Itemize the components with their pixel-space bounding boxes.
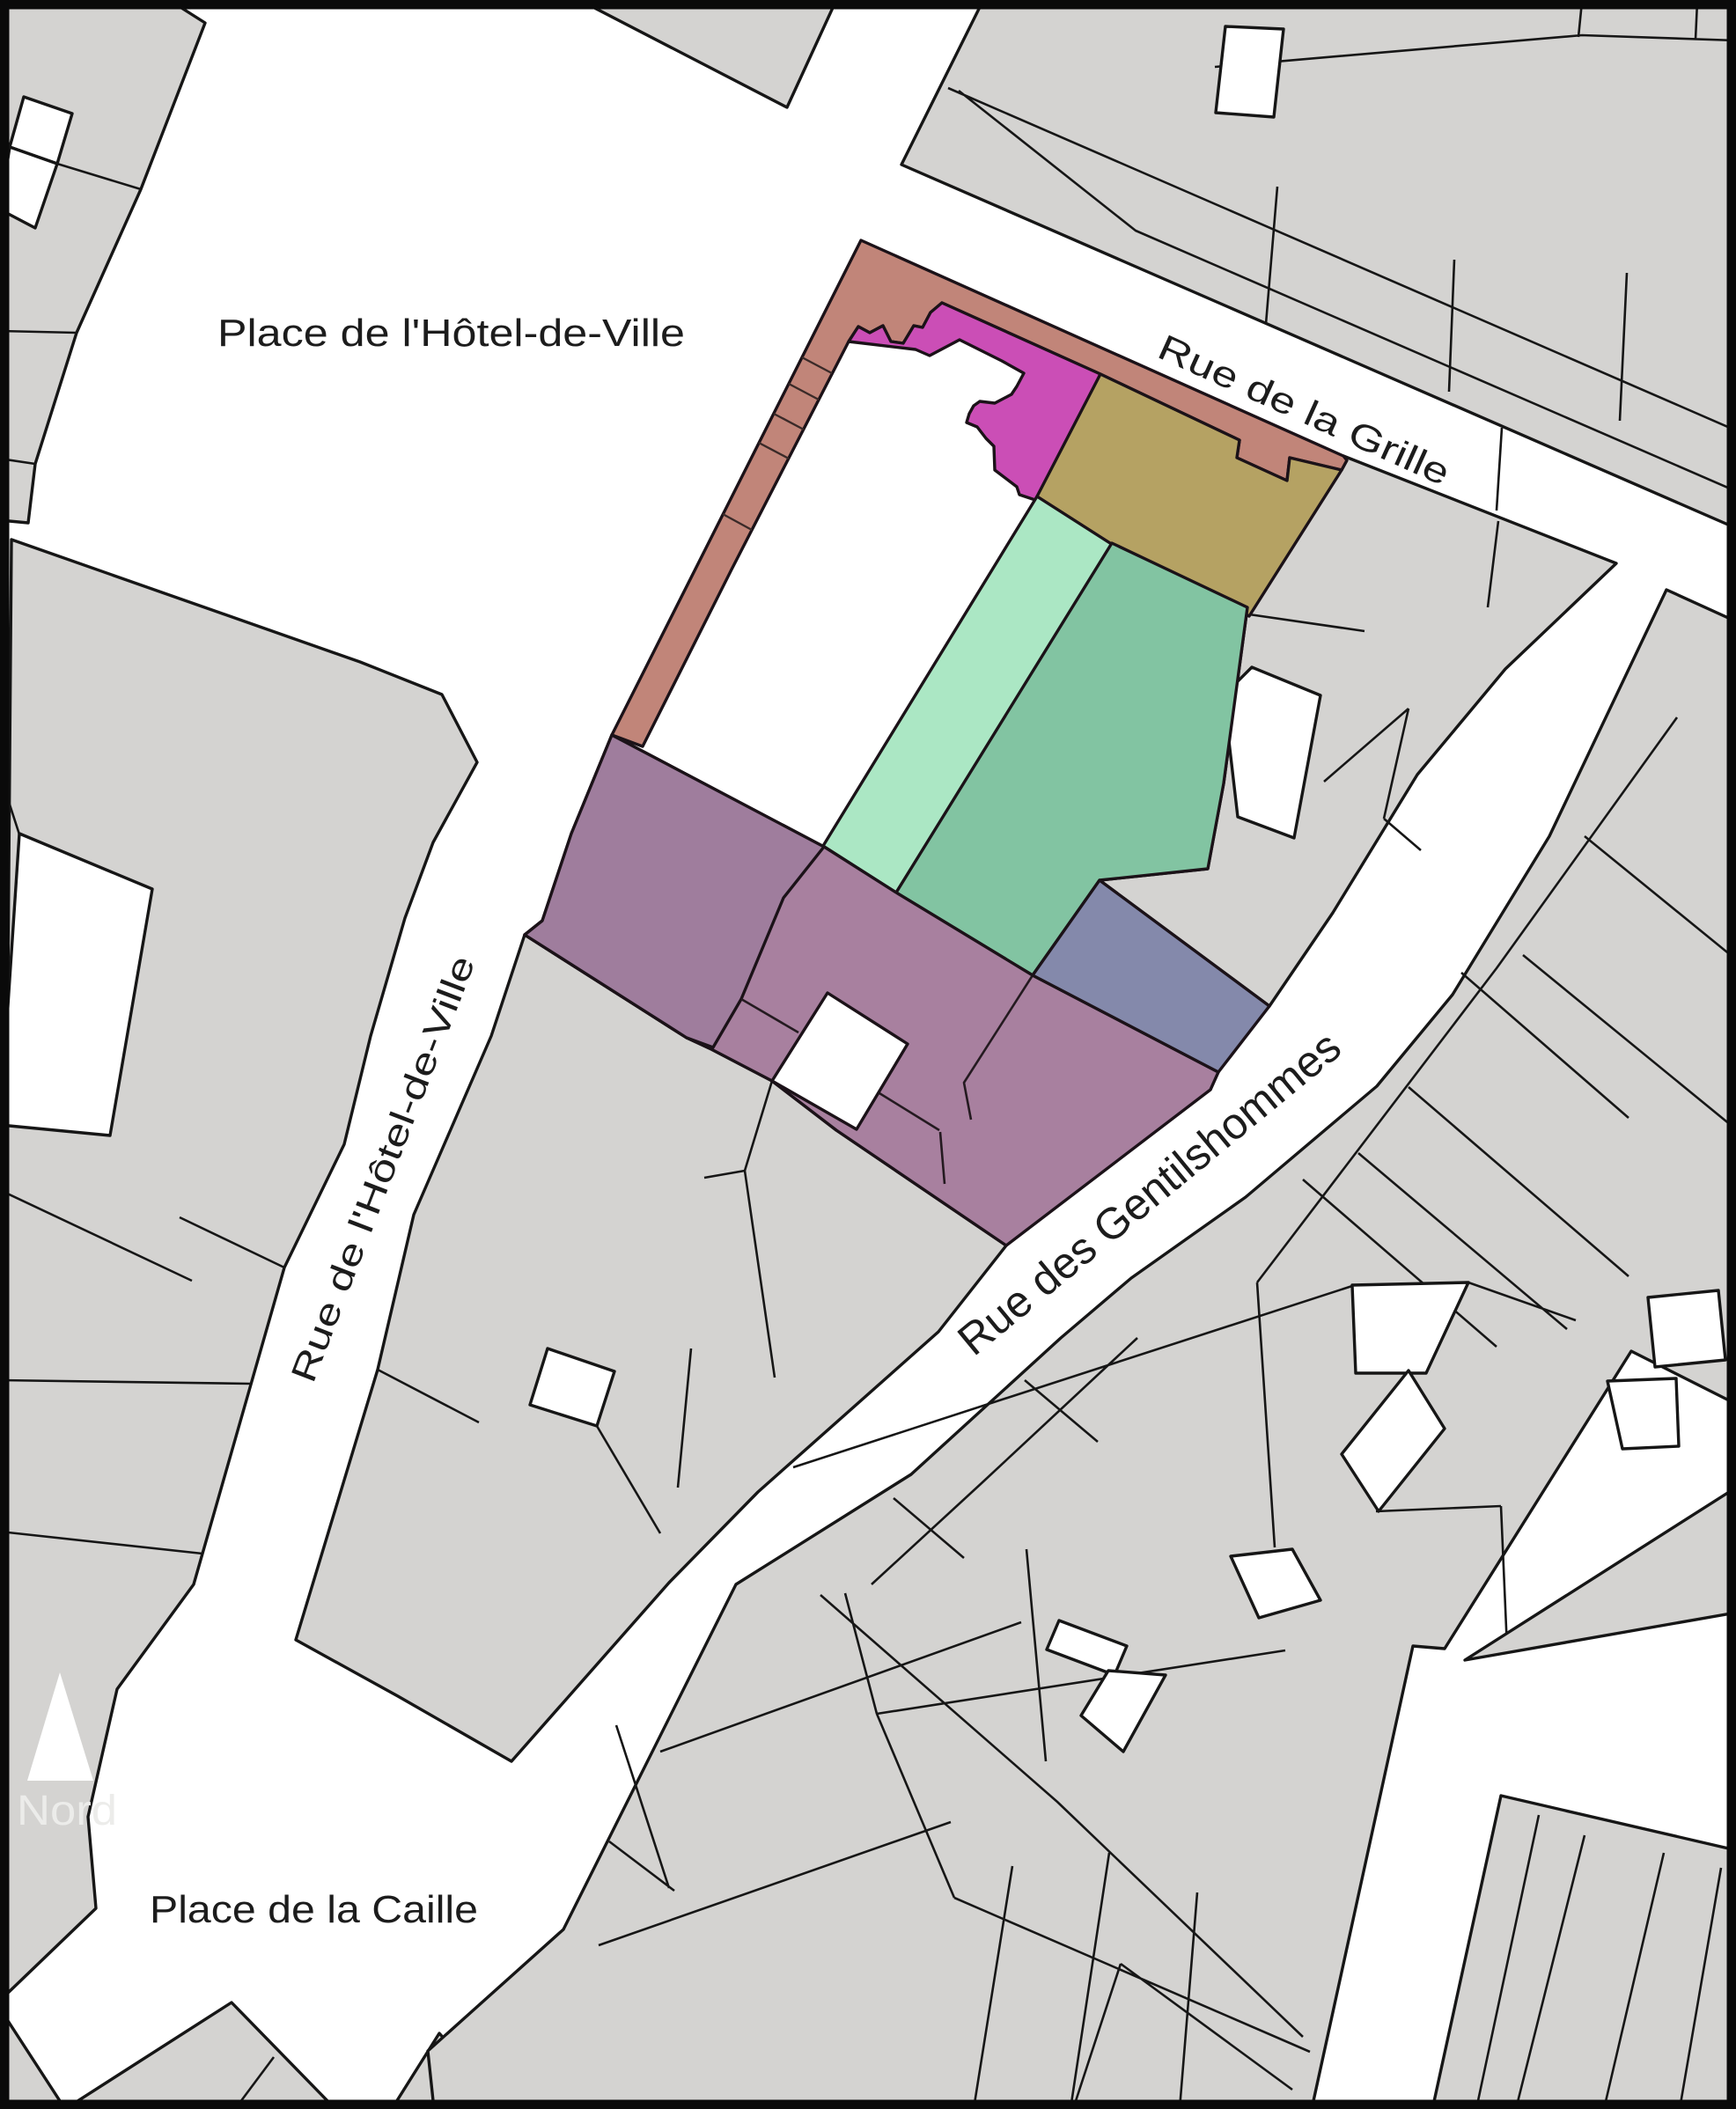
svg-text:Nord: Nord <box>17 1788 117 1834</box>
svg-text:Place de la Caille: Place de la Caille <box>150 1888 478 1931</box>
svg-text:Place de l'Hôtel-de-Ville: Place de l'Hôtel-de-Ville <box>217 312 685 355</box>
